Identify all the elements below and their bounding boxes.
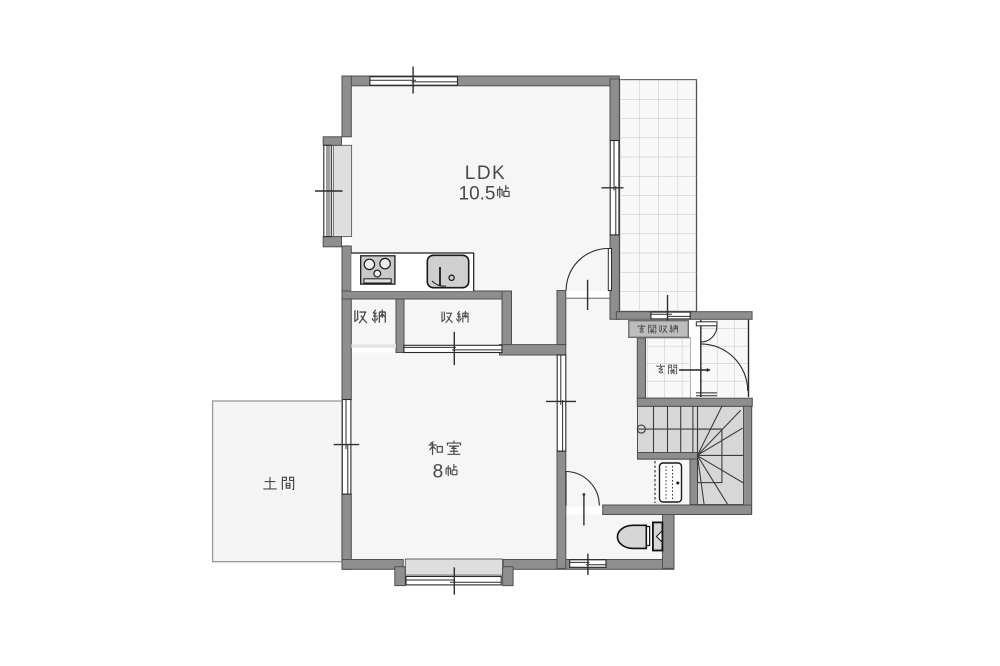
svg-text:8: 8 [433, 462, 444, 483]
svg-text:10.5: 10.5 [459, 184, 496, 205]
svg-text:LDK: LDK [465, 163, 506, 184]
